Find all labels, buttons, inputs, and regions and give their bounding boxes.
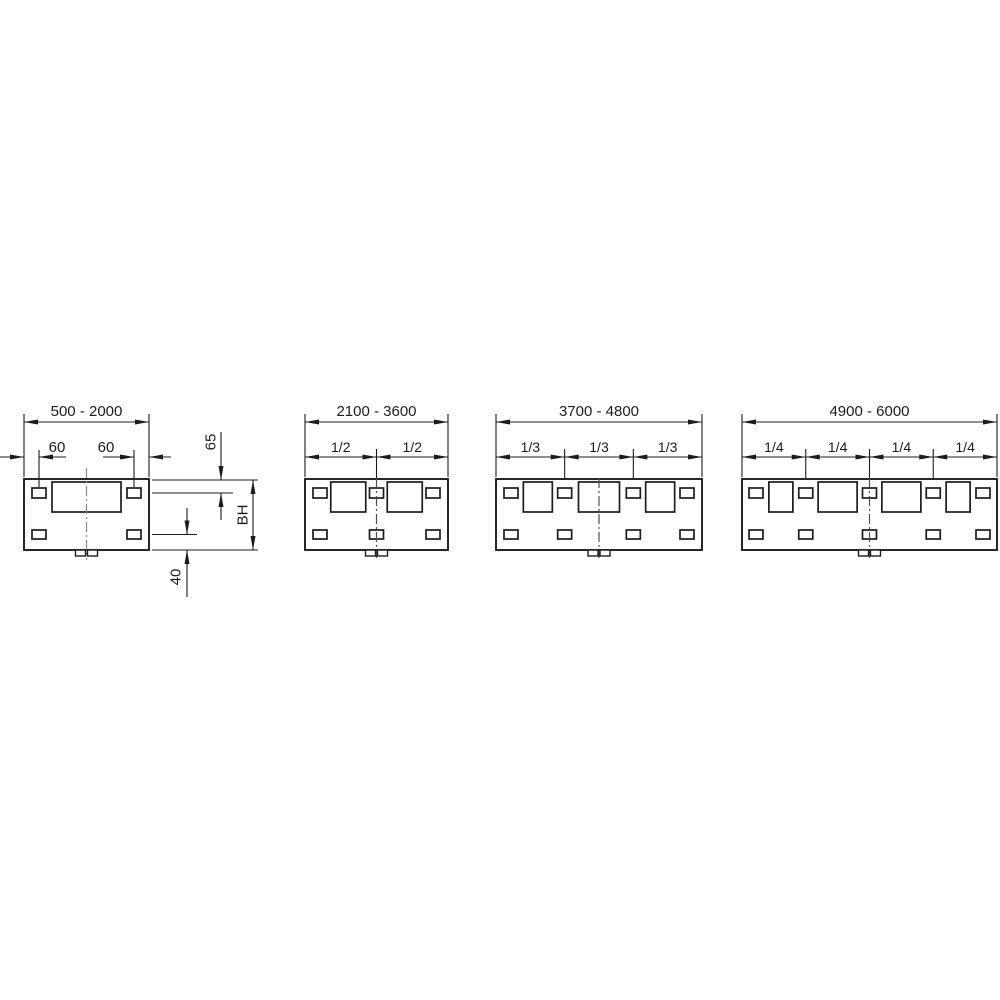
dimension-arrow bbox=[870, 455, 884, 460]
dimension-arrow bbox=[377, 455, 391, 460]
cutout bbox=[882, 482, 921, 512]
dimension-arrow bbox=[496, 455, 510, 460]
dimension-arrow bbox=[633, 455, 647, 460]
dimension-arrow bbox=[434, 420, 448, 425]
fraction-label: 1/4 bbox=[955, 439, 975, 455]
offset-label: 65 bbox=[202, 434, 219, 451]
fraction-label: 1/3 bbox=[658, 439, 678, 455]
cutout bbox=[523, 482, 552, 512]
dimension-arrow bbox=[185, 550, 190, 564]
mounting-slot bbox=[976, 530, 990, 539]
panel-body bbox=[496, 478, 702, 558]
mounting-slot bbox=[626, 530, 640, 539]
mounting-slot bbox=[626, 488, 640, 498]
dimension-arrow bbox=[219, 493, 224, 507]
mounting-tab bbox=[859, 550, 869, 556]
mounting-tab bbox=[588, 550, 598, 556]
mounting-tab bbox=[600, 550, 610, 556]
mounting-tab bbox=[871, 550, 881, 556]
mounting-tab bbox=[88, 550, 98, 556]
fraction-label: 1/4 bbox=[892, 439, 912, 455]
mounting-slot bbox=[32, 530, 46, 539]
dimension-arrow bbox=[185, 521, 190, 535]
mounting-slot bbox=[313, 530, 327, 539]
cutout bbox=[769, 482, 793, 512]
dimension-arrow bbox=[933, 455, 947, 460]
fraction-label: 1/4 bbox=[828, 439, 848, 455]
mounting-slot bbox=[799, 488, 813, 498]
mounting-tab bbox=[378, 550, 388, 556]
dimension-arrow bbox=[305, 420, 319, 425]
dimension-arrow bbox=[251, 536, 256, 550]
panel-2: 2100 - 36001/21/2 bbox=[305, 403, 448, 558]
fraction-label: 1/2 bbox=[403, 439, 423, 455]
top-offset-dimension: 65 bbox=[202, 432, 223, 520]
dimension-arrow bbox=[434, 455, 448, 460]
fraction-label: 1/2 bbox=[331, 439, 351, 455]
mounting-slot bbox=[558, 530, 572, 539]
cutout bbox=[331, 482, 366, 512]
range-label: 500 - 2000 bbox=[51, 403, 123, 420]
offset-label: 40 bbox=[167, 569, 184, 586]
dimension-arrow bbox=[305, 455, 319, 460]
dimension-arrow bbox=[149, 455, 163, 460]
dimension-arrow bbox=[806, 455, 820, 460]
mounting-tab bbox=[76, 550, 86, 556]
offset-label: 60 bbox=[49, 439, 66, 456]
drawing-canvas: 500 - 20002100 - 36001/21/23700 - 48001/… bbox=[0, 0, 1000, 1000]
range-label: 3700 - 4800 bbox=[559, 403, 639, 420]
mounting-slot bbox=[558, 488, 572, 498]
mounting-slot bbox=[313, 488, 327, 498]
dimension-arrow bbox=[742, 455, 756, 460]
mounting-slot bbox=[504, 530, 518, 539]
dimension-arrow bbox=[619, 455, 633, 460]
mounting-slot bbox=[926, 488, 940, 498]
technical-drawing: 500 - 20002100 - 36001/21/23700 - 48001/… bbox=[0, 0, 1000, 1000]
dimension-arrow bbox=[251, 480, 256, 494]
dimension-arrow bbox=[919, 455, 933, 460]
dimension-arrow bbox=[565, 455, 579, 460]
mounting-slot bbox=[680, 530, 694, 539]
dimension-arrow bbox=[856, 455, 870, 460]
dimension-arrow bbox=[496, 420, 510, 425]
bottom-offset-dimension: 40 bbox=[167, 508, 189, 597]
dimension-arrow bbox=[983, 420, 997, 425]
panel-3: 3700 - 48001/31/31/3 bbox=[496, 403, 702, 558]
fraction-label: 1/3 bbox=[589, 439, 609, 455]
height-label: BH bbox=[234, 505, 251, 526]
cutout bbox=[946, 482, 970, 512]
width-range-dimension: 500 - 2000 bbox=[24, 403, 149, 477]
dimension-arrow bbox=[10, 455, 24, 460]
dimension-arrow bbox=[135, 420, 149, 425]
dimension-arrow bbox=[551, 455, 565, 460]
panel-1: 500 - 2000 bbox=[24, 403, 149, 560]
cutout bbox=[646, 482, 675, 512]
mounting-slot bbox=[127, 488, 141, 498]
mounting-slot bbox=[749, 530, 763, 539]
dimension-arrow bbox=[120, 455, 134, 460]
dimension-arrow bbox=[24, 420, 38, 425]
mounting-slot bbox=[749, 488, 763, 498]
mounting-slot bbox=[426, 488, 440, 498]
height-dimension: BH bbox=[234, 480, 255, 550]
mounting-slot bbox=[926, 530, 940, 539]
mounting-slot bbox=[504, 488, 518, 498]
cutout bbox=[818, 482, 857, 512]
mounting-slot bbox=[127, 530, 141, 539]
mounting-tab bbox=[366, 550, 376, 556]
panel-body bbox=[24, 468, 149, 560]
fraction-label: 1/4 bbox=[764, 439, 784, 455]
cutout bbox=[387, 482, 422, 512]
dimension-arrow bbox=[792, 455, 806, 460]
mounting-slot bbox=[32, 488, 46, 498]
dimension-arrow bbox=[742, 420, 756, 425]
range-label: 2100 - 3600 bbox=[336, 403, 416, 420]
dimension-arrow bbox=[688, 420, 702, 425]
offset-label: 60 bbox=[98, 439, 115, 456]
dimension-arrow bbox=[688, 455, 702, 460]
dimension-arrow bbox=[363, 455, 377, 460]
mounting-slot bbox=[976, 488, 990, 498]
panel-4: 4900 - 60001/41/41/41/4 bbox=[742, 403, 997, 558]
fraction-label: 1/3 bbox=[521, 439, 541, 455]
panel-body bbox=[742, 478, 997, 558]
dimension-arrow bbox=[983, 455, 997, 460]
mounting-slot bbox=[680, 488, 694, 498]
mounting-slot bbox=[426, 530, 440, 539]
dimension-arrow bbox=[219, 466, 224, 480]
range-label: 4900 - 6000 bbox=[829, 403, 909, 420]
mounting-slot bbox=[799, 530, 813, 539]
panel-body bbox=[305, 478, 448, 558]
